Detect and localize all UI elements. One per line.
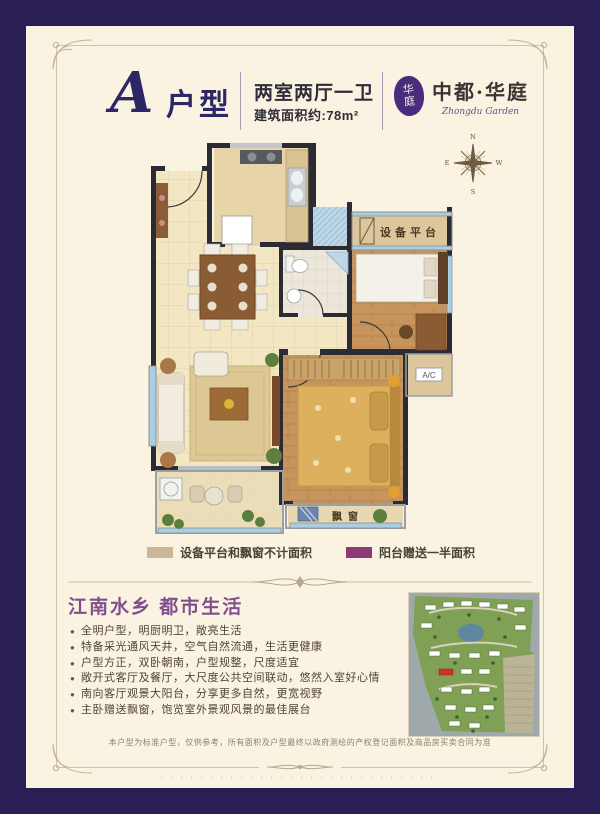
header-divider — [382, 72, 383, 130]
equipment-platform-label: 设备平台 — [380, 225, 440, 239]
bullet-dot-icon: ● — [70, 656, 81, 672]
bay-window-label: 飘窗 — [332, 510, 364, 523]
legend-swatch-tan-icon — [147, 547, 173, 558]
floor-area: 建筑面积约:78m² — [254, 105, 359, 124]
section-title: 江南水乡 都市生活 — [68, 592, 243, 619]
brand-name: 中都·华庭 — [432, 76, 529, 105]
compass-w: W — [496, 159, 503, 167]
section-divider — [68, 572, 532, 592]
feature-item: ●户型方正，双卧朝南，户型规整，尺度适宜 — [70, 656, 410, 672]
legend-swatch-purple-icon — [346, 547, 372, 558]
footer-dots: ···························· — [26, 772, 574, 782]
feature-item: ●特备采光通风天井，空气自然流通，生活更健康 — [70, 640, 410, 656]
bullet-dot-icon: ● — [70, 671, 81, 687]
legend-label: 设备平台和飘窗不计面积 — [180, 544, 312, 561]
legend-item-balcony: 阳台赠送一半面积 — [346, 544, 475, 561]
feature-item: ●敞开式客厅及餐厅，大尺度公共空间联动，悠然入室好心情 — [70, 671, 410, 687]
poster-page: A 户型 两室两厅一卫 建筑面积约:78m² 华庭 中都·华庭 Zhongdu … — [0, 0, 600, 814]
unit-type-letter: A — [110, 60, 153, 126]
bullet-dot-icon: ● — [70, 703, 81, 719]
legend: 设备平台和飘窗不计面积 阳台赠送一半面积 — [26, 544, 574, 561]
legend-label: 阳台赠送一半面积 — [379, 544, 475, 561]
corner-flourish-icon — [508, 37, 552, 81]
feature-list: ●全明户型，明厨明卫，敞亮生活 ●特备采光通风天井，空气自然流通，生活更健康 ●… — [70, 624, 410, 719]
header-divider — [240, 72, 241, 130]
brand-logo: 华庭 中都·华庭 Zhongdu Garden — [394, 76, 529, 117]
highlighted-building — [439, 669, 453, 675]
disclaimer-text: 本户型为标准户型，仅供参考，所有面积及户型最终以政府测绘的产权登记面积及商品房买… — [26, 737, 574, 748]
bullet-dot-icon: ● — [70, 624, 81, 640]
brand-name-en: Zhongdu Garden — [432, 107, 529, 117]
corner-flourish-icon — [48, 37, 92, 81]
compass-n: N — [470, 133, 476, 141]
bullet-dot-icon: ● — [70, 687, 81, 703]
ac-label: A/C — [422, 371, 436, 380]
bullet-dot-icon: ● — [70, 640, 81, 656]
room-count: 两室两厅一卫 — [254, 78, 374, 105]
site-plan-thumbnail — [408, 592, 540, 737]
feature-item: ●主卧赠送飘窗，饱览室外景观风景的最佳展台 — [70, 703, 410, 719]
legend-item-equipment: 设备平台和飘窗不计面积 — [147, 544, 312, 561]
brand-seal-icon: 华庭 — [392, 75, 426, 118]
feature-item: ●南向客厅观景大阳台，分享更多自然，更宽视野 — [70, 687, 410, 703]
floor-plan: 设备平台 A/C 飘窗 — [148, 138, 462, 538]
poster-content: A 户型 两室两厅一卫 建筑面积约:78m² 华庭 中都·华庭 Zhongdu … — [26, 26, 574, 788]
compass-s: S — [471, 188, 475, 196]
unit-type-word: 户型 — [166, 80, 232, 124]
feature-item: ●全明户型，明厨明卫，敞亮生活 — [70, 624, 410, 640]
